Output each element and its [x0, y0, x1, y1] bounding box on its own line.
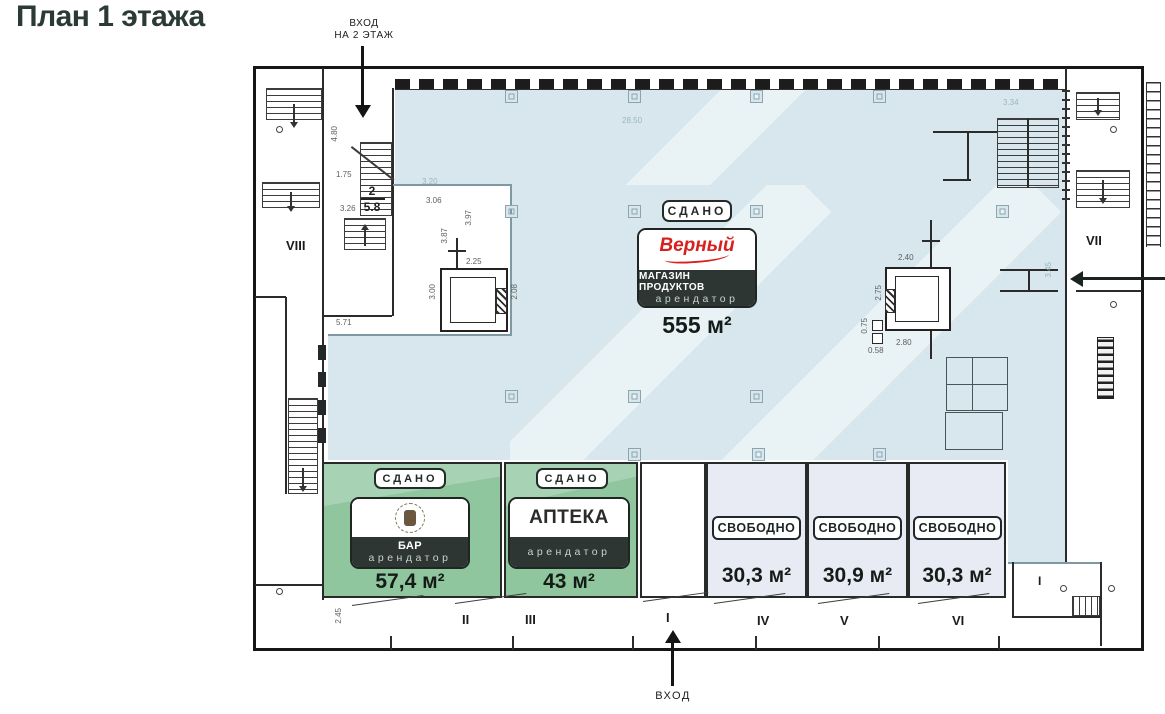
pharmacy-area-value: 43 м²	[508, 570, 630, 594]
wall	[1000, 290, 1058, 292]
grocery-card-footer: МАГАЗИН ПРОДУКТОВ арендатор	[639, 270, 755, 306]
circle-marker	[1110, 126, 1117, 133]
wall	[933, 131, 997, 133]
wall	[967, 131, 969, 181]
entrance-floor2-label: ВХОД НА 2 ЭТАЖ	[322, 18, 406, 42]
pharmacy-logo-area: АПТЕКА	[510, 499, 628, 537]
grocery-role: арендатор	[656, 293, 739, 305]
bar-emblem-core	[404, 510, 416, 526]
elevator-hatch	[885, 289, 895, 313]
section-iv-label: IV	[757, 613, 769, 628]
wall-tick	[512, 636, 514, 650]
wall-tick	[448, 250, 466, 252]
exterior-ladder	[1146, 82, 1161, 247]
wall-tick	[922, 240, 940, 242]
grocery-category: МАГАЗИН ПРОДУКТОВ	[639, 271, 755, 293]
pharmacy-name: АПТЕКА	[529, 507, 609, 529]
dimension-label: 3.20	[422, 177, 438, 186]
column-marker	[505, 90, 518, 103]
elevator-hatch	[496, 288, 507, 314]
pharmacy-tenant-card: АПТЕКА арендатор	[508, 497, 630, 569]
wall	[1100, 562, 1102, 646]
wall-tick	[390, 636, 392, 650]
wall	[1012, 562, 1014, 617]
wall	[322, 315, 392, 317]
dimension-label: 2.25	[466, 257, 482, 266]
circle-marker	[276, 126, 283, 133]
area-boundary	[328, 334, 510, 336]
area-boundary	[1008, 562, 1100, 564]
vacant-1-area-value: 30,3 м²	[706, 564, 807, 588]
stair-direction-arrow	[302, 468, 304, 490]
wall-window-hatch	[1062, 90, 1070, 200]
column-marker	[505, 205, 518, 218]
dimension-label: 4.80	[330, 126, 339, 142]
wall	[1076, 290, 1142, 292]
dimension-label: 3.87	[440, 228, 449, 244]
bar-name: БАР	[398, 540, 422, 552]
stair-direction-arrow	[293, 104, 295, 126]
bar-emblem-icon	[395, 503, 425, 533]
wall	[1028, 269, 1030, 291]
column-marker	[505, 390, 518, 403]
section-ii-label: II	[462, 612, 469, 627]
dimension-label: 3.26	[340, 204, 356, 213]
vacant-2-area-value: 30,9 м²	[807, 564, 908, 588]
entrance-corridor	[640, 462, 706, 598]
shaft-box	[872, 320, 883, 331]
dimension-label: 2.45	[334, 608, 343, 624]
pharmacy-role: арендатор	[528, 546, 611, 558]
window-wall-hatch	[395, 79, 1065, 90]
bar-card-footer: БАР арендатор	[352, 537, 468, 567]
section-vi-label: VI	[952, 613, 964, 628]
bar-area-value: 57,4 м²	[350, 570, 470, 594]
section-iii-label: III	[525, 612, 536, 627]
wc-wall	[946, 384, 1008, 385]
window-mark	[318, 428, 326, 443]
column-marker	[873, 90, 886, 103]
floor-plan-canvas: План 1 этажа ВХОД НА 2 ЭТАЖ VIII	[0, 0, 1165, 714]
circle-marker	[1108, 585, 1115, 592]
dimension-label: 3.34	[1003, 98, 1019, 107]
column-marker	[873, 448, 886, 461]
dimension-label: 3.00	[428, 284, 437, 300]
wall	[456, 238, 458, 268]
wall	[1012, 616, 1100, 618]
status-badge-vacant-2: СВОБОДНО	[813, 516, 902, 540]
status-badge-grocery: СДАНО	[662, 200, 732, 222]
shaft-hatch	[1097, 337, 1114, 399]
bar-role: арендатор	[369, 552, 452, 564]
elevator-cab	[450, 277, 496, 323]
stair-direction-arrow	[364, 226, 366, 246]
status-badge-vacant-3: СВОБОДНО	[913, 516, 1002, 540]
wall-tick	[755, 636, 757, 650]
column-marker	[750, 90, 763, 103]
entrance-floor2-line2: НА 2 ЭТАЖ	[322, 30, 406, 42]
bar-tenant-card: БАР арендатор	[350, 497, 470, 569]
section-v-label: V	[840, 613, 849, 628]
column-marker	[752, 448, 765, 461]
area-boundary	[393, 184, 510, 186]
dimension-label: 2.75	[874, 285, 883, 301]
column-marker	[628, 448, 641, 461]
section-vii-label: VII	[1086, 233, 1102, 248]
room-number: 2	[360, 184, 384, 198]
status-badge-pharmacy: СДАНО	[536, 468, 608, 489]
wall	[392, 88, 394, 316]
dimension-label: 5.71	[336, 318, 352, 327]
dimension-label: 3.45	[1044, 262, 1053, 278]
wall-tick	[632, 636, 634, 650]
wall	[930, 220, 932, 267]
column-marker	[628, 205, 641, 218]
dimension-label: 2.40	[898, 253, 914, 262]
elevator-cab	[895, 276, 939, 322]
status-badge-bar: СДАНО	[374, 468, 446, 489]
wall-tick	[878, 636, 880, 650]
dimension-label: 2.08	[510, 284, 519, 300]
pharmacy-card-footer: арендатор	[510, 537, 628, 567]
grocery-logo-area: Верный	[639, 230, 755, 270]
circle-marker	[1110, 301, 1117, 308]
staircase	[1072, 596, 1100, 616]
stair-divider	[1027, 118, 1029, 188]
column-marker	[750, 390, 763, 403]
column-marker	[628, 90, 641, 103]
wall	[255, 584, 322, 586]
dimension-label: 28.50	[622, 116, 642, 125]
wall-tick	[998, 636, 1000, 650]
wall	[930, 331, 932, 359]
section-i-right-label: I	[1038, 574, 1041, 588]
circle-marker	[1060, 585, 1067, 592]
vacant-3-area-value: 30,3 м²	[908, 564, 1006, 588]
storage-room	[945, 412, 1003, 450]
dimension-label: 1.75	[336, 170, 352, 179]
grocery-area-top	[395, 88, 1065, 185]
grocery-brand-logo: Верный	[659, 237, 734, 255]
grocery-area-value: 555 м²	[637, 312, 757, 339]
grocery-area-bottomright	[1008, 460, 1065, 563]
shaft-box	[872, 333, 883, 344]
dimension-label: 0.75	[860, 318, 869, 334]
dimension-label: 0.58	[868, 346, 884, 355]
wall	[255, 296, 286, 298]
column-marker	[750, 205, 763, 218]
wall	[285, 297, 287, 494]
side-entrance-arrow	[1074, 277, 1165, 280]
section-viii-label: VIII	[286, 238, 306, 253]
column-marker	[628, 390, 641, 403]
main-entrance-label: ВХОД	[640, 690, 706, 702]
column-marker	[996, 205, 1009, 218]
page-title: План 1 этажа	[16, 0, 205, 34]
wall	[943, 179, 971, 181]
window-mark	[318, 400, 326, 415]
room-area: 5.8	[360, 200, 384, 214]
stair-direction-arrow	[1097, 98, 1099, 114]
circle-marker	[276, 588, 283, 595]
dimension-label: 3.06	[426, 196, 442, 205]
watermark-stripe	[525, 88, 864, 185]
main-entrance-arrow	[671, 634, 674, 686]
grocery-tenant-card: Верный МАГАЗИН ПРОДУКТОВ арендатор	[637, 228, 757, 308]
stair-direction-arrow	[1102, 180, 1104, 202]
entrance-floor2-line1: ВХОД	[322, 18, 406, 30]
window-mark	[318, 345, 326, 360]
stair-direction-arrow	[290, 192, 292, 210]
dimension-label: 2.80	[896, 338, 912, 347]
window-mark	[318, 372, 326, 387]
dimension-label: 3.97	[464, 210, 473, 226]
status-badge-vacant-1: СВОБОДНО	[712, 516, 801, 540]
bar-logo-area	[352, 499, 468, 537]
grocery-area-left	[328, 335, 510, 460]
